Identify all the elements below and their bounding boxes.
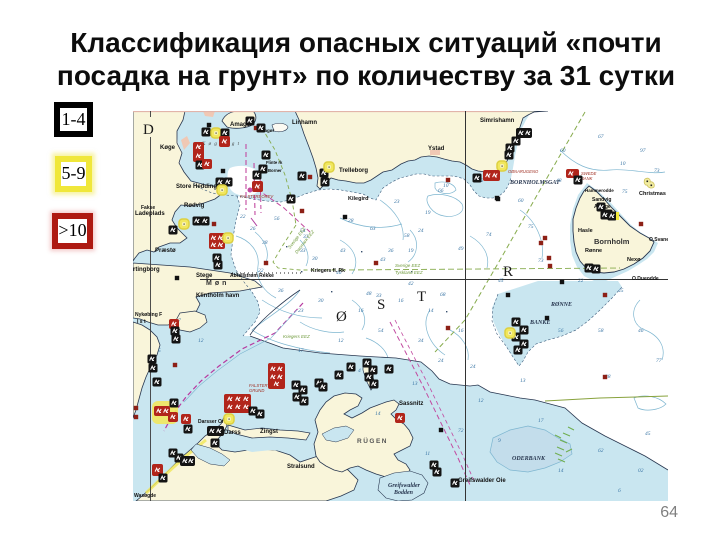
svg-text:Amager: Amager (230, 122, 253, 128)
svg-text:02: 02 (638, 468, 644, 474)
svg-text:Stralsund: Stralsund (287, 464, 315, 470)
svg-text:23: 23 (298, 308, 304, 314)
svg-text:36: 36 (387, 248, 394, 254)
svg-text:5: 5 (158, 348, 161, 354)
svg-text:14: 14 (375, 410, 381, 417)
svg-text:36: 36 (277, 288, 284, 294)
svg-text:D: D (143, 122, 154, 138)
svg-text:73: 73 (538, 258, 544, 264)
svg-text:RÜGEN: RÜGEN (357, 436, 388, 445)
svg-text:73: 73 (654, 168, 660, 174)
svg-text:FALSTERBOREV: FALSTERBOREV (240, 194, 274, 199)
svg-text:Greifswalder: Greifswalder (388, 483, 421, 489)
svg-text:22: 22 (578, 278, 584, 284)
svg-text:19: 19 (408, 248, 414, 254)
svg-text:13: 13 (520, 378, 526, 384)
svg-text:12: 12 (198, 338, 204, 344)
svg-text:ODERBANK: ODERBANK (512, 456, 546, 462)
svg-text:30: 30 (311, 256, 318, 262)
svg-text:12: 12 (478, 398, 484, 404)
svg-text:Rødvig: Rødvig (184, 203, 205, 209)
svg-text:26: 26 (250, 226, 256, 232)
svg-text:22: 22 (240, 214, 246, 220)
svg-text:Wasøgde: Wasøgde (134, 493, 156, 499)
svg-text:24: 24 (438, 357, 444, 364)
svg-text:60: 60 (560, 148, 566, 154)
svg-text:Store Heddinge: Store Heddinge (176, 184, 221, 190)
svg-text:BORNHOLMSGAT: BORNHOLMSGAT (509, 180, 560, 186)
svg-text:Ø: Ø (336, 309, 347, 325)
svg-text:74: 74 (486, 231, 492, 238)
svg-text:Linhamn: Linhamn (292, 120, 317, 126)
svg-text:63: 63 (370, 226, 376, 232)
svg-text:43: 43 (340, 247, 346, 254)
svg-text:67: 67 (598, 134, 604, 140)
svg-text:24: 24 (470, 363, 476, 370)
svg-text:rtingborg: rtingborg (133, 267, 160, 273)
svg-text:49: 49 (458, 245, 464, 252)
svg-text:17: 17 (298, 348, 304, 354)
svg-text:9: 9 (498, 438, 501, 444)
svg-text:48: 48 (366, 290, 372, 297)
svg-text:O.Svane: O.Svane (649, 237, 668, 243)
svg-text:Greifswalder Oie: Greifswalder Oie (458, 478, 506, 484)
svg-text:Kilegird: Kilegird (348, 196, 368, 202)
svg-text:Nykøbing F: Nykøbing F (135, 312, 162, 318)
svg-text:Køge: Køge (160, 145, 176, 151)
svg-text:Flinte rk: Flinte rk (266, 160, 283, 165)
svg-text:16: 16 (458, 328, 464, 334)
svg-text:Kriegers fl. Rk: Kriegers fl. Rk (311, 268, 345, 274)
svg-text:Abfallstrøm Rekke: Abfallstrøm Rekke (230, 273, 274, 279)
svg-text:Tyskland EEZ: Tyskland EEZ (395, 270, 423, 275)
svg-text:14: 14 (428, 307, 434, 314)
svg-text:O.Dueodde: O.Dueodde (632, 276, 659, 282)
svg-text:16: 16 (398, 298, 404, 304)
svg-text:24: 24 (418, 227, 424, 234)
svg-text:34: 34 (417, 337, 424, 344)
svg-text:BANK: BANK (581, 176, 593, 181)
svg-text:Bornholm: Bornholm (594, 237, 630, 246)
svg-text:77: 77 (656, 358, 662, 364)
svg-text:97: 97 (640, 148, 646, 154)
svg-text:Hasle: Hasle (578, 228, 593, 234)
svg-text:14: 14 (558, 467, 564, 474)
svg-text:S: S (377, 297, 385, 313)
svg-text:60: 60 (518, 198, 524, 204)
svg-text:Stege: Stege (196, 273, 213, 279)
svg-text:28: 28 (348, 218, 354, 224)
svg-text:33: 33 (375, 293, 382, 299)
svg-text:6: 6 (618, 488, 621, 494)
svg-text:12: 12 (338, 338, 344, 344)
svg-text:58: 58 (404, 233, 410, 239)
svg-text:58: 58 (598, 328, 604, 334)
svg-text:4: 4 (358, 367, 361, 374)
svg-text:68: 68 (440, 292, 446, 298)
svg-text:45: 45 (618, 287, 624, 294)
svg-text:46: 46 (638, 327, 644, 334)
svg-text:RØNNE: RØNNE (550, 302, 572, 308)
svg-text:10: 10 (620, 161, 626, 167)
svg-text:Klintholm havn: Klintholm havn (196, 293, 240, 299)
svg-text:45: 45 (498, 277, 504, 284)
svg-text:Zingst: Zingst (260, 429, 278, 435)
svg-text:54: 54 (378, 327, 384, 334)
svg-text:19: 19 (425, 210, 431, 216)
svg-text:Darss: Darss (224, 430, 241, 436)
svg-text:42: 42 (408, 280, 414, 287)
svg-text:Præstø: Præstø (155, 248, 176, 254)
svg-text:Hammerodde: Hammerodde (585, 188, 614, 193)
svg-text:13: 13 (412, 381, 418, 387)
svg-text:23: 23 (394, 199, 400, 205)
svg-text:Borner: Borner (268, 168, 282, 173)
svg-text:Sverige EEZ: Sverige EEZ (395, 263, 421, 268)
svg-text:38: 38 (261, 240, 268, 246)
svg-text:Darsser Ort: Darsser Ort (198, 419, 226, 425)
svg-text:Bodden: Bodden (393, 490, 414, 496)
svg-text:Ladeplads: Ladeplads (135, 211, 165, 217)
svg-text:56: 56 (558, 328, 564, 334)
svg-text:Kriegers EEZ: Kriegers EEZ (283, 334, 310, 339)
svg-text:GRUND: GRUND (249, 388, 264, 393)
svg-text:R: R (503, 264, 513, 280)
svg-text:43: 43 (380, 256, 386, 263)
svg-text:Sassnitz: Sassnitz (399, 401, 423, 407)
svg-text:56: 56 (274, 216, 280, 222)
svg-text:BANKE: BANKE (529, 320, 550, 326)
svg-text:Trelleborg: Trelleborg (339, 168, 368, 174)
svg-text:OBNARUGENO: OBNARUGENO (508, 169, 539, 174)
svg-text:45: 45 (645, 430, 651, 437)
svg-text:Simrishamn: Simrishamn (480, 118, 515, 124)
svg-text:Rønne: Rønne (585, 248, 602, 254)
svg-text:62: 62 (598, 448, 604, 454)
svg-text:Nexø: Nexø (627, 257, 641, 263)
svg-text:Sandvig: Sandvig (592, 197, 611, 203)
svg-text:Christmas: Christmas (639, 191, 666, 197)
svg-text:Ystad: Ystad (428, 146, 445, 152)
svg-text:17: 17 (538, 418, 544, 424)
svg-text:Møn: Møn (206, 280, 229, 287)
svg-text:I s t: I s t (137, 319, 146, 325)
svg-text:11: 11 (425, 451, 430, 457)
svg-text:10: 10 (443, 183, 449, 189)
svg-text:16: 16 (358, 308, 364, 314)
svg-text:72: 72 (458, 428, 464, 434)
svg-text:75: 75 (528, 224, 534, 230)
svg-text:30: 30 (317, 298, 324, 304)
svg-text:T: T (417, 289, 426, 305)
svg-text:75: 75 (622, 189, 628, 195)
